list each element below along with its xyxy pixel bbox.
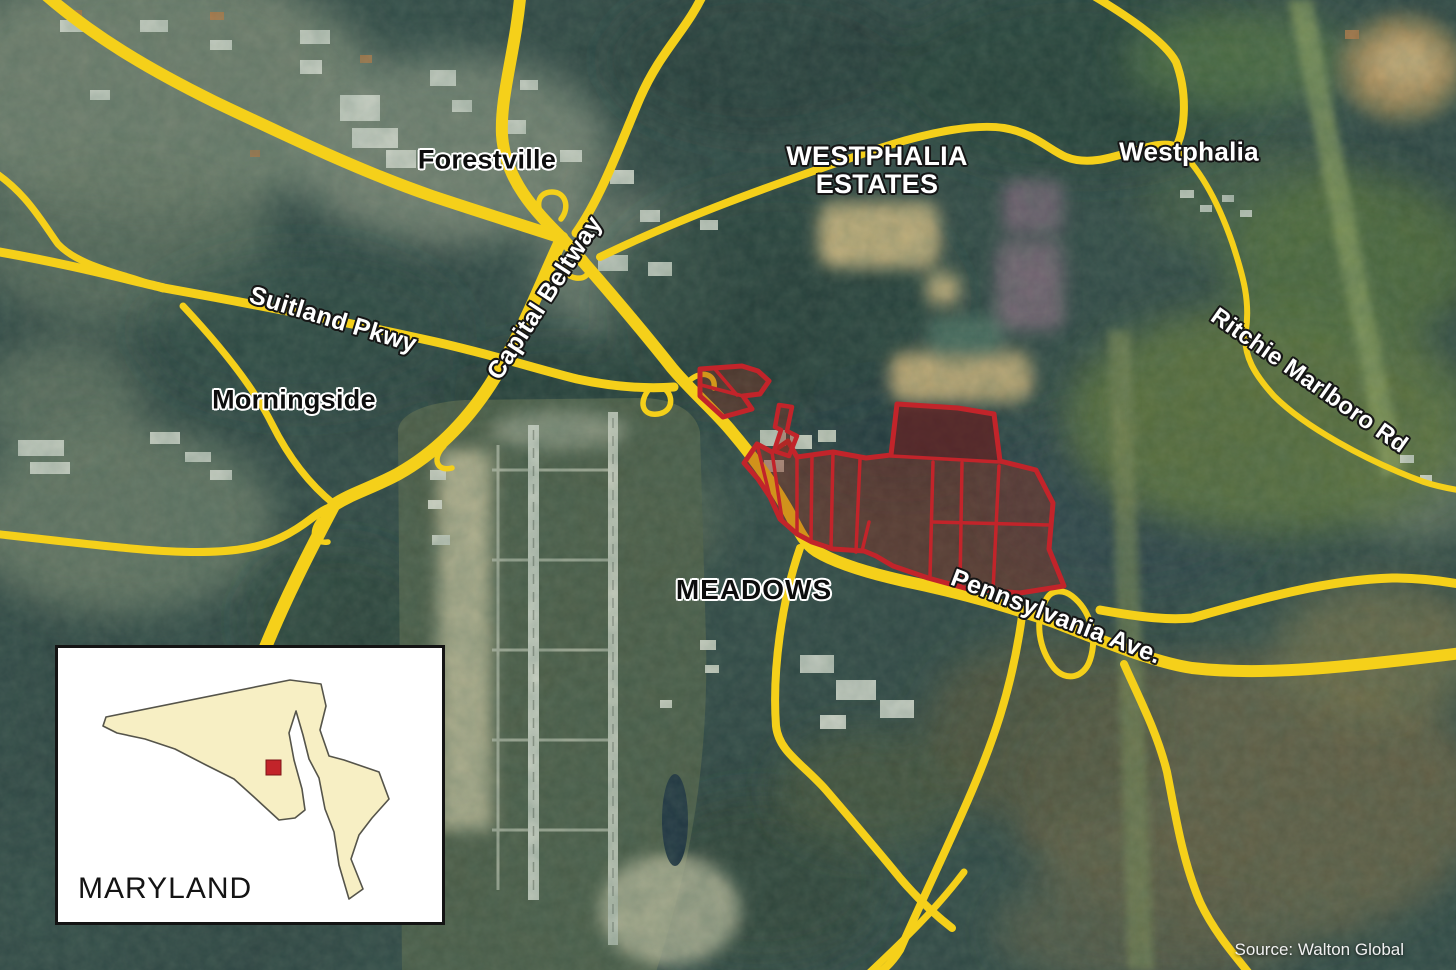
westphalia-estates-line1: WESTPHALIA [786,142,968,170]
map-canvas: Forestville WESTPHALIA ESTATES Westphali… [0,0,1456,970]
maryland-state-shape [103,680,389,899]
place-label-morningside: Morningside [212,385,376,416]
locator-inset: MARYLAND [55,645,445,925]
place-label-forestville: Forestville [418,145,556,176]
source-attribution: Source: Walton Global [1235,940,1404,960]
westphalia-estates-line2: ESTATES [786,170,968,198]
place-label-westphalia-estates: WESTPHALIA ESTATES [786,142,968,198]
place-label-meadows: MEADOWS [676,574,832,606]
location-marker [266,760,281,775]
parcel-connector-strip [774,405,797,456]
inset-state-label: MARYLAND [78,872,252,906]
place-label-westphalia: Westphalia [1119,137,1259,168]
